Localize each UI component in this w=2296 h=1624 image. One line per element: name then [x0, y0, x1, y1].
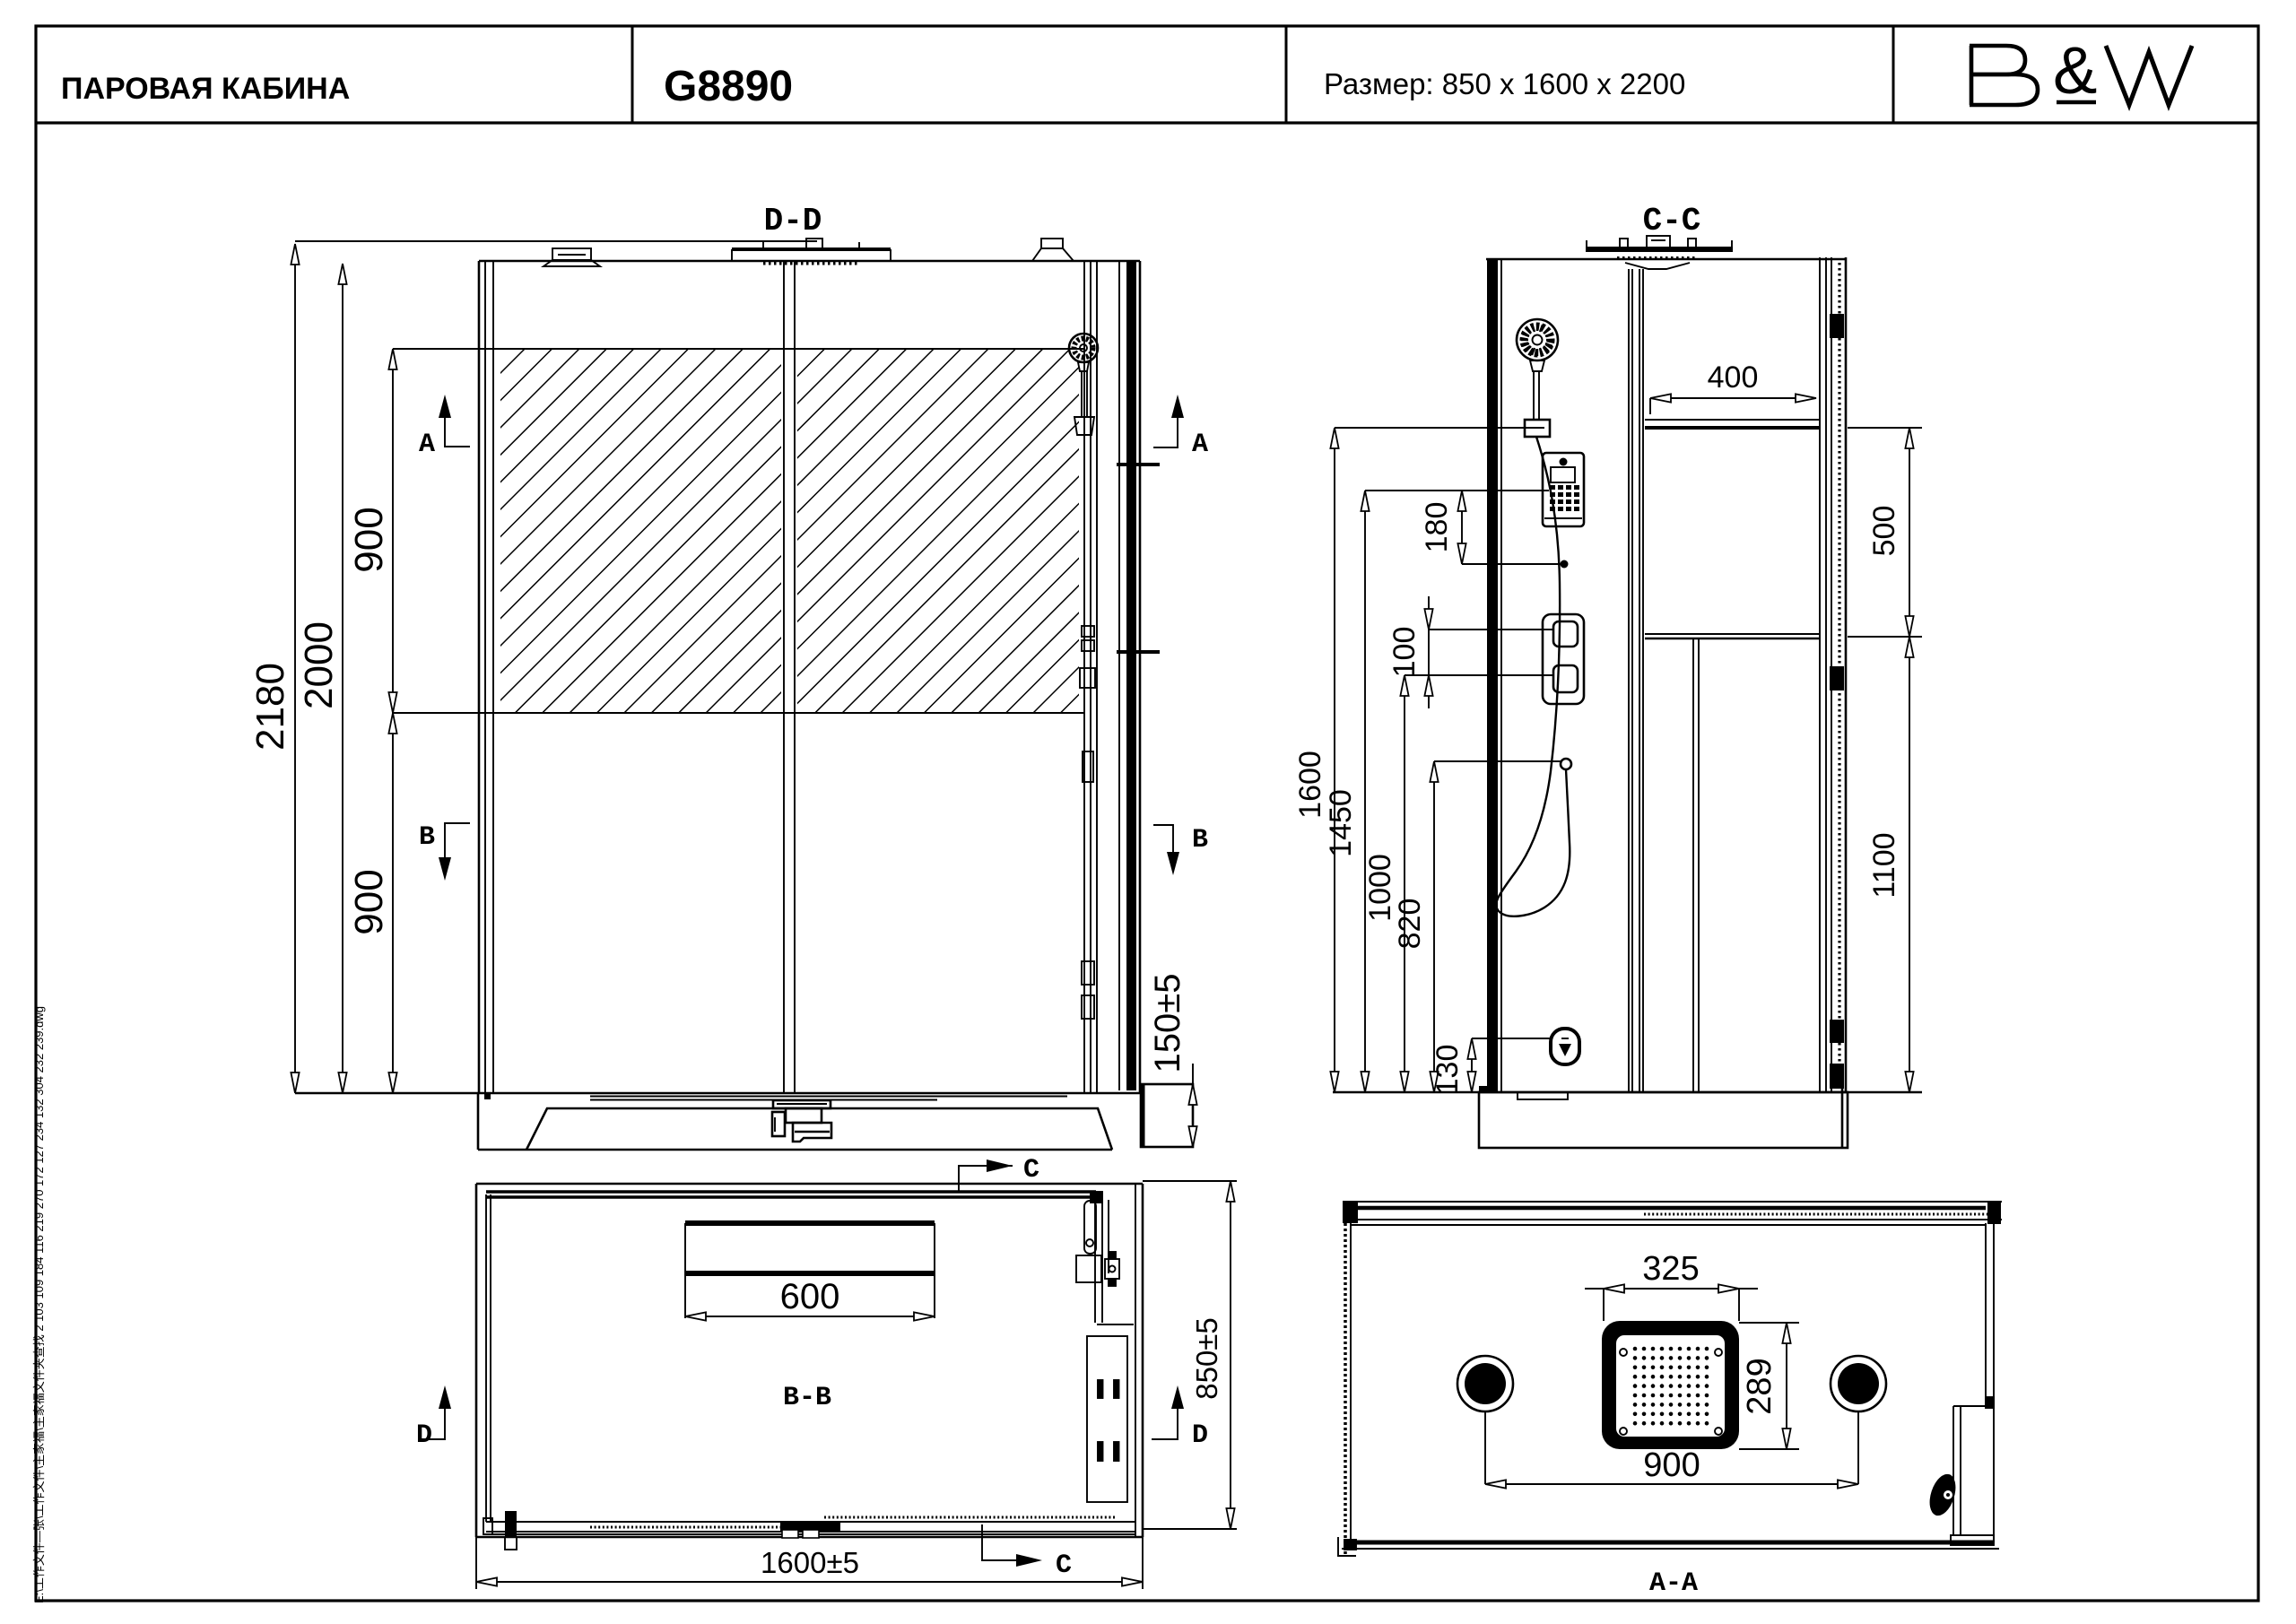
svg-text:B: B	[419, 822, 435, 853]
svg-text:900: 900	[347, 507, 391, 572]
svg-text:C-C: C-C	[1643, 203, 1701, 239]
svg-text:E:\工作文件—张\工作文件\主家福\主家福文件夹查找 2: E:\工作文件—张\工作文件\主家福\主家福文件夹查找 2 103 109 18…	[32, 1006, 46, 1603]
svg-text:100: 100	[1387, 627, 1422, 678]
svg-text:820: 820	[1393, 899, 1427, 950]
svg-text:2180: 2180	[248, 663, 292, 751]
svg-text:1600: 1600	[1293, 751, 1327, 819]
svg-text:600: 600	[780, 1277, 840, 1316]
svg-text:1450: 1450	[1324, 789, 1358, 857]
svg-text:900: 900	[347, 869, 391, 934]
svg-text:500: 500	[1867, 506, 1901, 557]
svg-text:1100: 1100	[1867, 832, 1901, 898]
svg-text:150±5: 150±5	[1148, 974, 1187, 1073]
svg-text:D: D	[416, 1420, 432, 1451]
svg-text:2000: 2000	[297, 621, 341, 709]
svg-text:850±5: 850±5	[1190, 1317, 1223, 1400]
svg-text:D-D: D-D	[764, 203, 822, 239]
svg-text:180: 180	[1420, 502, 1454, 553]
svg-text:A: A	[419, 430, 435, 460]
svg-text:289: 289	[1741, 1358, 1779, 1414]
svg-text:400: 400	[1708, 360, 1759, 395]
svg-text:130: 130	[1431, 1045, 1465, 1096]
svg-text:C: C	[1023, 1155, 1039, 1185]
svg-text:325: 325	[1642, 1250, 1699, 1288]
svg-text:Размер: 850 х 1600 х 2200: Размер: 850 х 1600 х 2200	[1324, 67, 1685, 100]
svg-text:B: B	[1192, 825, 1208, 855]
svg-text:G8890: G8890	[664, 63, 793, 110]
svg-text:ПАРОВАЯ КАБИНА: ПАРОВАЯ КАБИНА	[61, 72, 350, 106]
svg-text:B-B: B-B	[783, 1383, 831, 1413]
svg-text:1600±5: 1600±5	[761, 1546, 859, 1579]
svg-text:D: D	[1192, 1420, 1208, 1451]
svg-text:A-A: A-A	[1649, 1568, 1698, 1599]
svg-text:900: 900	[1643, 1446, 1700, 1484]
svg-text:A: A	[1192, 430, 1208, 460]
svg-text:&: &	[2053, 33, 2097, 108]
svg-text:C: C	[1056, 1550, 1072, 1581]
